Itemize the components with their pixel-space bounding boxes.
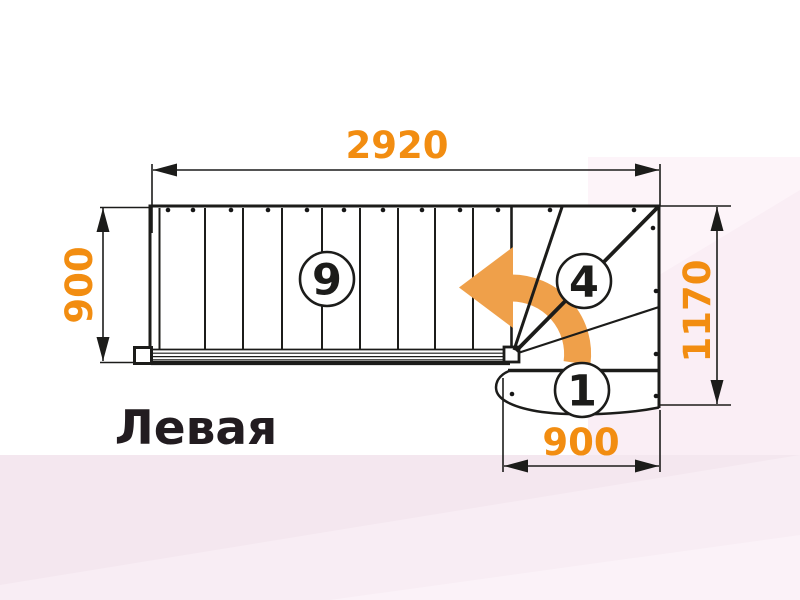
orientation-label: Левая	[115, 401, 278, 456]
step-number-first: 1	[555, 363, 609, 417]
dimension-value-left: 900	[58, 246, 101, 323]
step-number-winder: 4	[557, 254, 611, 308]
step-number-value: 9	[312, 256, 342, 306]
dimension-value-right: 1170	[676, 260, 719, 363]
left-newel-post	[135, 348, 152, 364]
step-number-value: 4	[569, 258, 599, 308]
step-number-value: 1	[567, 367, 597, 417]
dimension-value-top: 2920	[346, 124, 449, 167]
staircase-plan-drawing: 2920 900 1170 900 9 4 1 Л	[0, 0, 800, 600]
step-number-straight: 9	[300, 252, 354, 306]
dimension-value-bottom: 900	[542, 421, 619, 464]
